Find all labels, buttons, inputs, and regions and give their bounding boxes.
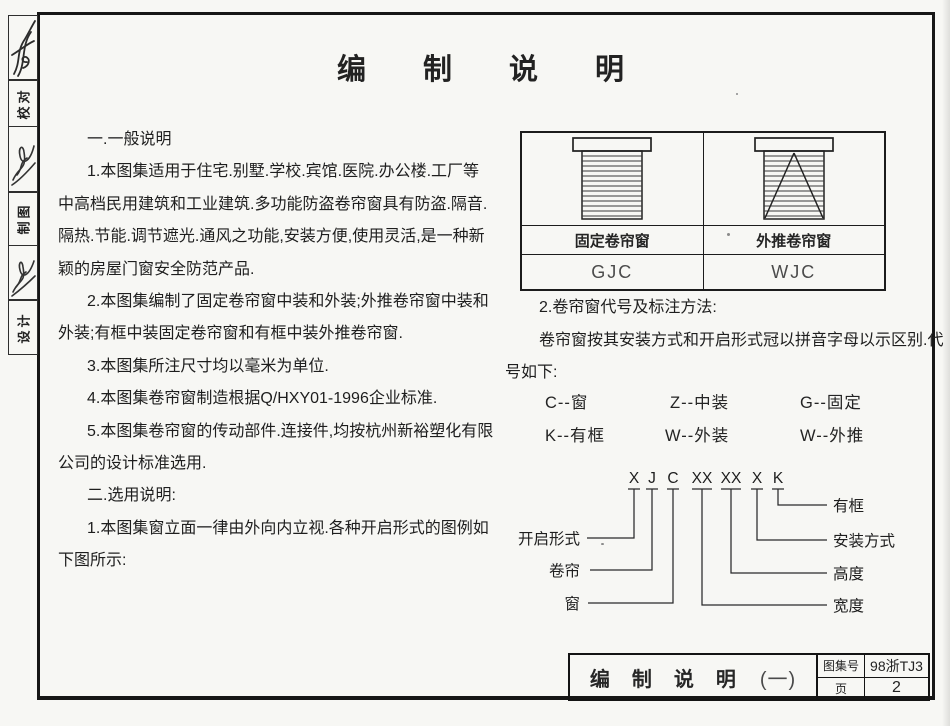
- diagram-label-framed: 有框: [833, 497, 864, 515]
- fixed-shutter-window-diagram: [522, 133, 703, 225]
- title-block-title: 编制说明 (一): [570, 655, 816, 699]
- legend-label-fixed: 固定卷帘窗: [522, 225, 703, 254]
- margin-label-design: 设计: [8, 299, 38, 355]
- push-out-shutter-window-diagram: [703, 133, 885, 225]
- window-type-legend-table: 固定卷帘窗 外推卷帘窗 GJC WJC: [520, 131, 886, 291]
- note-line: 卷帘窗按其安装方式和开启形式冠以拼音字母以示区别.代: [505, 325, 937, 358]
- signature-scribble: [8, 126, 38, 193]
- note-line: 号如下:: [505, 357, 937, 390]
- margin-label-text: 校对: [14, 87, 33, 119]
- note-line: 二.选用说明:: [58, 480, 516, 512]
- note-line: 2.卷帘窗代号及标注方法:: [505, 292, 937, 325]
- page-title: 编制说明: [337, 46, 681, 88]
- title-block-sheet-index: (一): [760, 663, 796, 692]
- push-out-roller-shutter-icon: [729, 135, 859, 223]
- note-line: 下图所示:: [58, 545, 516, 577]
- legend-code-gjc: GJC: [522, 254, 703, 289]
- code-item: C--窗: [545, 389, 588, 413]
- margin-label-draft: 制图: [8, 191, 38, 246]
- designation-code-diagram: X J C XX XX X K 开启形式 卷帘 窗 有框 安装方式 高度 宽度: [480, 455, 935, 630]
- note-line: 2.本图集编制了固定卷帘窗中装和外装;外推卷帘窗中装和: [58, 286, 516, 318]
- scan-edge-shadow: [942, 0, 950, 726]
- legend-code-wjc: WJC: [703, 254, 885, 289]
- code-token: C: [667, 470, 678, 487]
- signature-icon: [10, 248, 36, 298]
- note-line: 公司的设计标准选用.: [58, 448, 516, 480]
- code-notes: 2.卷帘窗代号及标注方法: 卷帘窗按其安装方式和开启形式冠以拼音字母以示区别.代…: [505, 292, 937, 390]
- legend-label-pushout: 外推卷帘窗: [703, 225, 885, 254]
- scan-speck: [736, 93, 738, 95]
- code-item: G--固定: [800, 389, 862, 413]
- note-line: 一.一般说明: [58, 124, 516, 156]
- scan-speck: [727, 233, 730, 236]
- note-line: 3.本图集所注尺寸均以毫米为单位.: [58, 351, 516, 383]
- code-item: W--外装: [665, 422, 729, 446]
- note-line: 隔热.节能.调节遮光.通风之功能,安装方便,使用灵活,是一种新: [58, 221, 516, 253]
- diagram-label-height: 高度: [833, 565, 864, 583]
- fixed-roller-shutter-icon: [547, 135, 677, 223]
- signature-scribble: [8, 245, 38, 301]
- code-token: J: [648, 470, 656, 487]
- code-token: X: [629, 470, 640, 487]
- note-line: 1.本图集适用于住宅.别墅.学校.宾馆.医院.办公楼.工厂等: [58, 156, 516, 188]
- code-item: K--有框: [545, 422, 605, 446]
- title-block: 编制说明 (一) 图集号 98浙TJ3 页 2: [568, 653, 930, 701]
- note-line: 4.本图集卷帘窗制造根据Q/HXY01-1996企业标准.: [58, 383, 516, 415]
- atlas-number-label: 图集号: [818, 655, 865, 677]
- note-line: 外装;有框中装固定卷帘窗和有框中装外推卷帘窗.: [58, 318, 516, 350]
- page-number-value: 2: [865, 678, 928, 700]
- general-notes: 一.一般说明 1.本图集适用于住宅.别墅.学校.宾馆.医院.办公楼.工厂等 中高…: [58, 124, 516, 578]
- code-list: C--窗 Z--中装 G--固定 K--有框 W--外装 W--外推: [505, 389, 937, 459]
- note-line: 5.本图集卷帘窗的传动部件.连接件,均按杭州新裕塑化有限: [58, 416, 516, 448]
- diagram-label-window: 窗: [564, 595, 580, 613]
- diagram-label-shutter: 卷帘: [549, 562, 580, 580]
- signature-icon: [10, 18, 36, 78]
- code-token: XX: [692, 470, 713, 487]
- page-label: 页: [818, 678, 865, 700]
- title-block-title-text: 编制说明: [590, 663, 758, 692]
- title-block-info: 图集号 98浙TJ3 页 2: [816, 655, 928, 699]
- margin-label-check: 校对: [8, 79, 38, 127]
- scan-speck: [601, 543, 604, 545]
- signature-scribble: [8, 15, 38, 81]
- margin-label-text: 设计: [14, 311, 33, 343]
- margin-strip: 校对 制图 设计: [8, 16, 38, 355]
- note-line: 颖的房屋门窗安全防范产品.: [58, 254, 516, 286]
- diagram-label-opening-style: 开启形式: [518, 530, 580, 548]
- code-item: Z--中装: [670, 389, 729, 413]
- atlas-number-value: 98浙TJ3: [865, 655, 928, 677]
- margin-label-text: 制图: [14, 202, 33, 234]
- code-item: W--外推: [800, 422, 864, 446]
- code-token: K: [773, 470, 784, 487]
- signature-icon: [10, 130, 36, 188]
- code-token: X: [752, 470, 763, 487]
- note-line: 中高档民用建筑和工业建筑.多功能防盗卷帘窗具有防盗.隔音.: [58, 189, 516, 221]
- diagram-label-install-method: 安装方式: [833, 532, 895, 550]
- note-line: 1.本图集窗立面一律由外向内立视.各种开启形式的图例如: [58, 513, 516, 545]
- diagram-label-width: 宽度: [833, 597, 864, 615]
- code-token: XX: [721, 470, 742, 487]
